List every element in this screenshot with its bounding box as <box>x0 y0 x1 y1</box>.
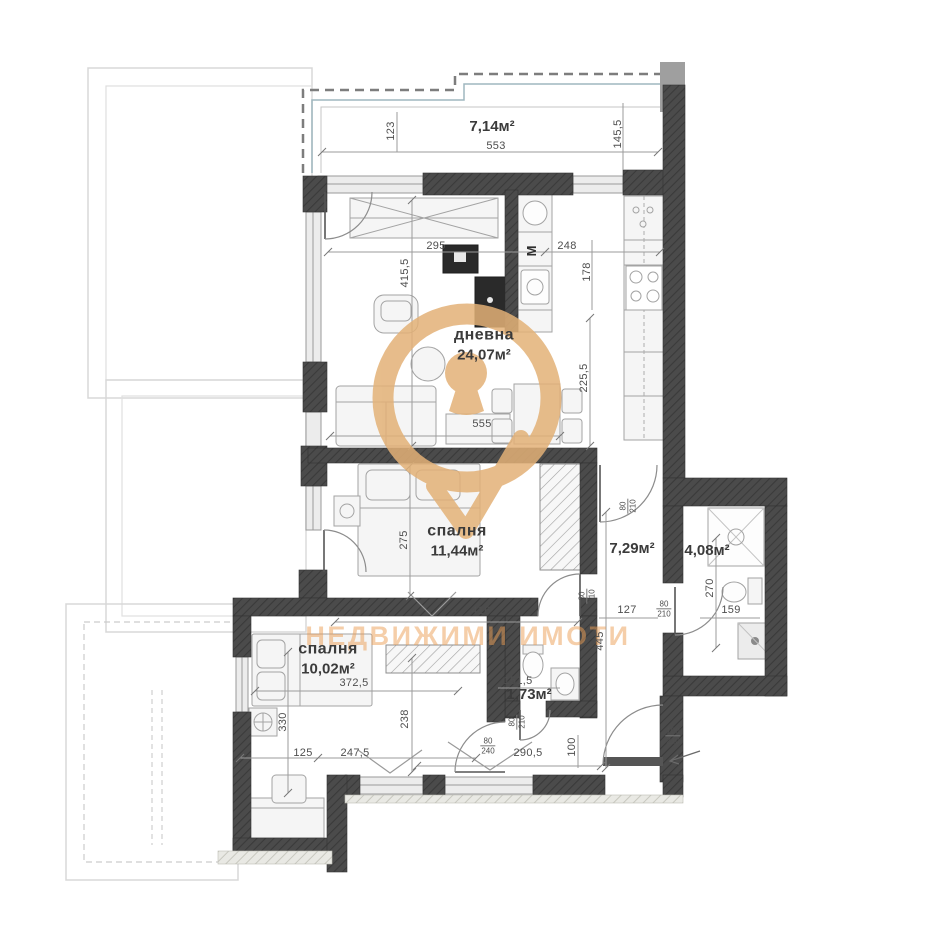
door-height: 240 <box>480 746 495 756</box>
door-size-label: 80210 <box>656 599 671 618</box>
room-area: 1,73м² <box>506 685 551 705</box>
room-area: 7,29м² <box>609 539 654 559</box>
dimension-label: 159 <box>721 604 740 616</box>
door-height: 210 <box>587 588 597 603</box>
door-height: 210 <box>656 609 671 619</box>
door-width: 80 <box>660 599 669 608</box>
dimension-label: 553 <box>486 140 505 152</box>
dimension-label: 330 <box>277 712 289 731</box>
dimension-label: 416 <box>471 605 490 617</box>
dimension-label: 555 <box>472 418 491 430</box>
room-label-bedroom2: спалня10,02м² <box>298 639 358 680</box>
door-size-label: 80240 <box>480 736 495 755</box>
chair <box>562 419 582 443</box>
dimension-label: 238 <box>399 709 411 728</box>
room-label-corridor: 7,29м² <box>609 539 654 559</box>
door-height: 210 <box>665 736 680 746</box>
dimension-label: 295 <box>426 240 445 252</box>
pillow <box>257 672 285 700</box>
desk <box>250 798 324 838</box>
entrance-door <box>603 757 663 766</box>
floor-plan-drawing: M НЕДВИЖИМИ ИМОТИ <box>0 0 935 950</box>
dimension-label: 290,5 <box>513 747 542 759</box>
room-area: 7,14м² <box>469 117 514 137</box>
dimension-label: 123 <box>385 121 397 140</box>
chair <box>492 419 512 443</box>
room-label-living: дневна24,07м² <box>454 325 514 366</box>
chair <box>492 389 512 413</box>
door-size-label: 100210 <box>665 726 680 745</box>
room-area: 4,08м² <box>684 541 729 561</box>
pillow <box>257 640 285 668</box>
room-label-bedroom1: спалня11,44м² <box>427 521 487 562</box>
nightstand <box>334 496 360 526</box>
dimension-label: 125 <box>293 747 312 759</box>
dimension-label: 270 <box>704 578 716 597</box>
dimension-label: 247,5 <box>340 747 369 759</box>
desk-chair <box>272 775 306 803</box>
kitchen-sink <box>521 270 549 304</box>
room-area: 11,44м² <box>427 542 487 562</box>
door-size-label: 80210 <box>507 714 526 729</box>
dimension-label: 127 <box>617 604 636 616</box>
door-width: 80 <box>484 736 493 745</box>
chair <box>562 389 582 413</box>
round-table <box>411 347 445 381</box>
door-size-label: 80210 <box>618 498 637 513</box>
door-width: 80 <box>618 502 627 511</box>
room-name: спалня <box>298 639 358 660</box>
dimension-label: 178 <box>581 262 593 281</box>
dimension-label: 100 <box>566 737 578 756</box>
door-height: 210 <box>517 714 527 729</box>
door-width: 80 <box>507 718 516 727</box>
pillow <box>366 470 410 500</box>
door-width: 80 <box>577 592 586 601</box>
floor-plan: M НЕДВИЖИМИ ИМОТИ 7,14м²дневна24,07м²спа… <box>0 0 935 950</box>
room-name: спалня <box>427 521 487 542</box>
dimension-label: 225,5 <box>578 363 590 392</box>
room-area: 24,07м² <box>454 346 514 366</box>
dimension-label: 445 <box>594 631 606 650</box>
window <box>306 412 321 448</box>
toilet <box>722 582 746 602</box>
door-height: 210 <box>628 498 638 513</box>
toilet-tank <box>748 578 762 604</box>
room-label-terrace: 7,14м² <box>469 117 514 137</box>
room-label-bathroom: 4,08м² <box>684 541 729 561</box>
room-name: дневна <box>454 325 514 346</box>
dimension-label: 415,5 <box>399 258 411 287</box>
room-area: 10,02м² <box>298 660 358 680</box>
door-size-label: 80210 <box>577 588 596 603</box>
dimension-label: 145,5 <box>612 119 624 148</box>
dimension-label: 248 <box>557 240 576 252</box>
dimension-label: 275 <box>398 530 410 549</box>
door-width: 100 <box>666 726 679 735</box>
wardrobe <box>540 464 582 570</box>
room-label-wc: 1,73м² <box>506 685 551 705</box>
washing-machine-label: M <box>524 246 539 257</box>
